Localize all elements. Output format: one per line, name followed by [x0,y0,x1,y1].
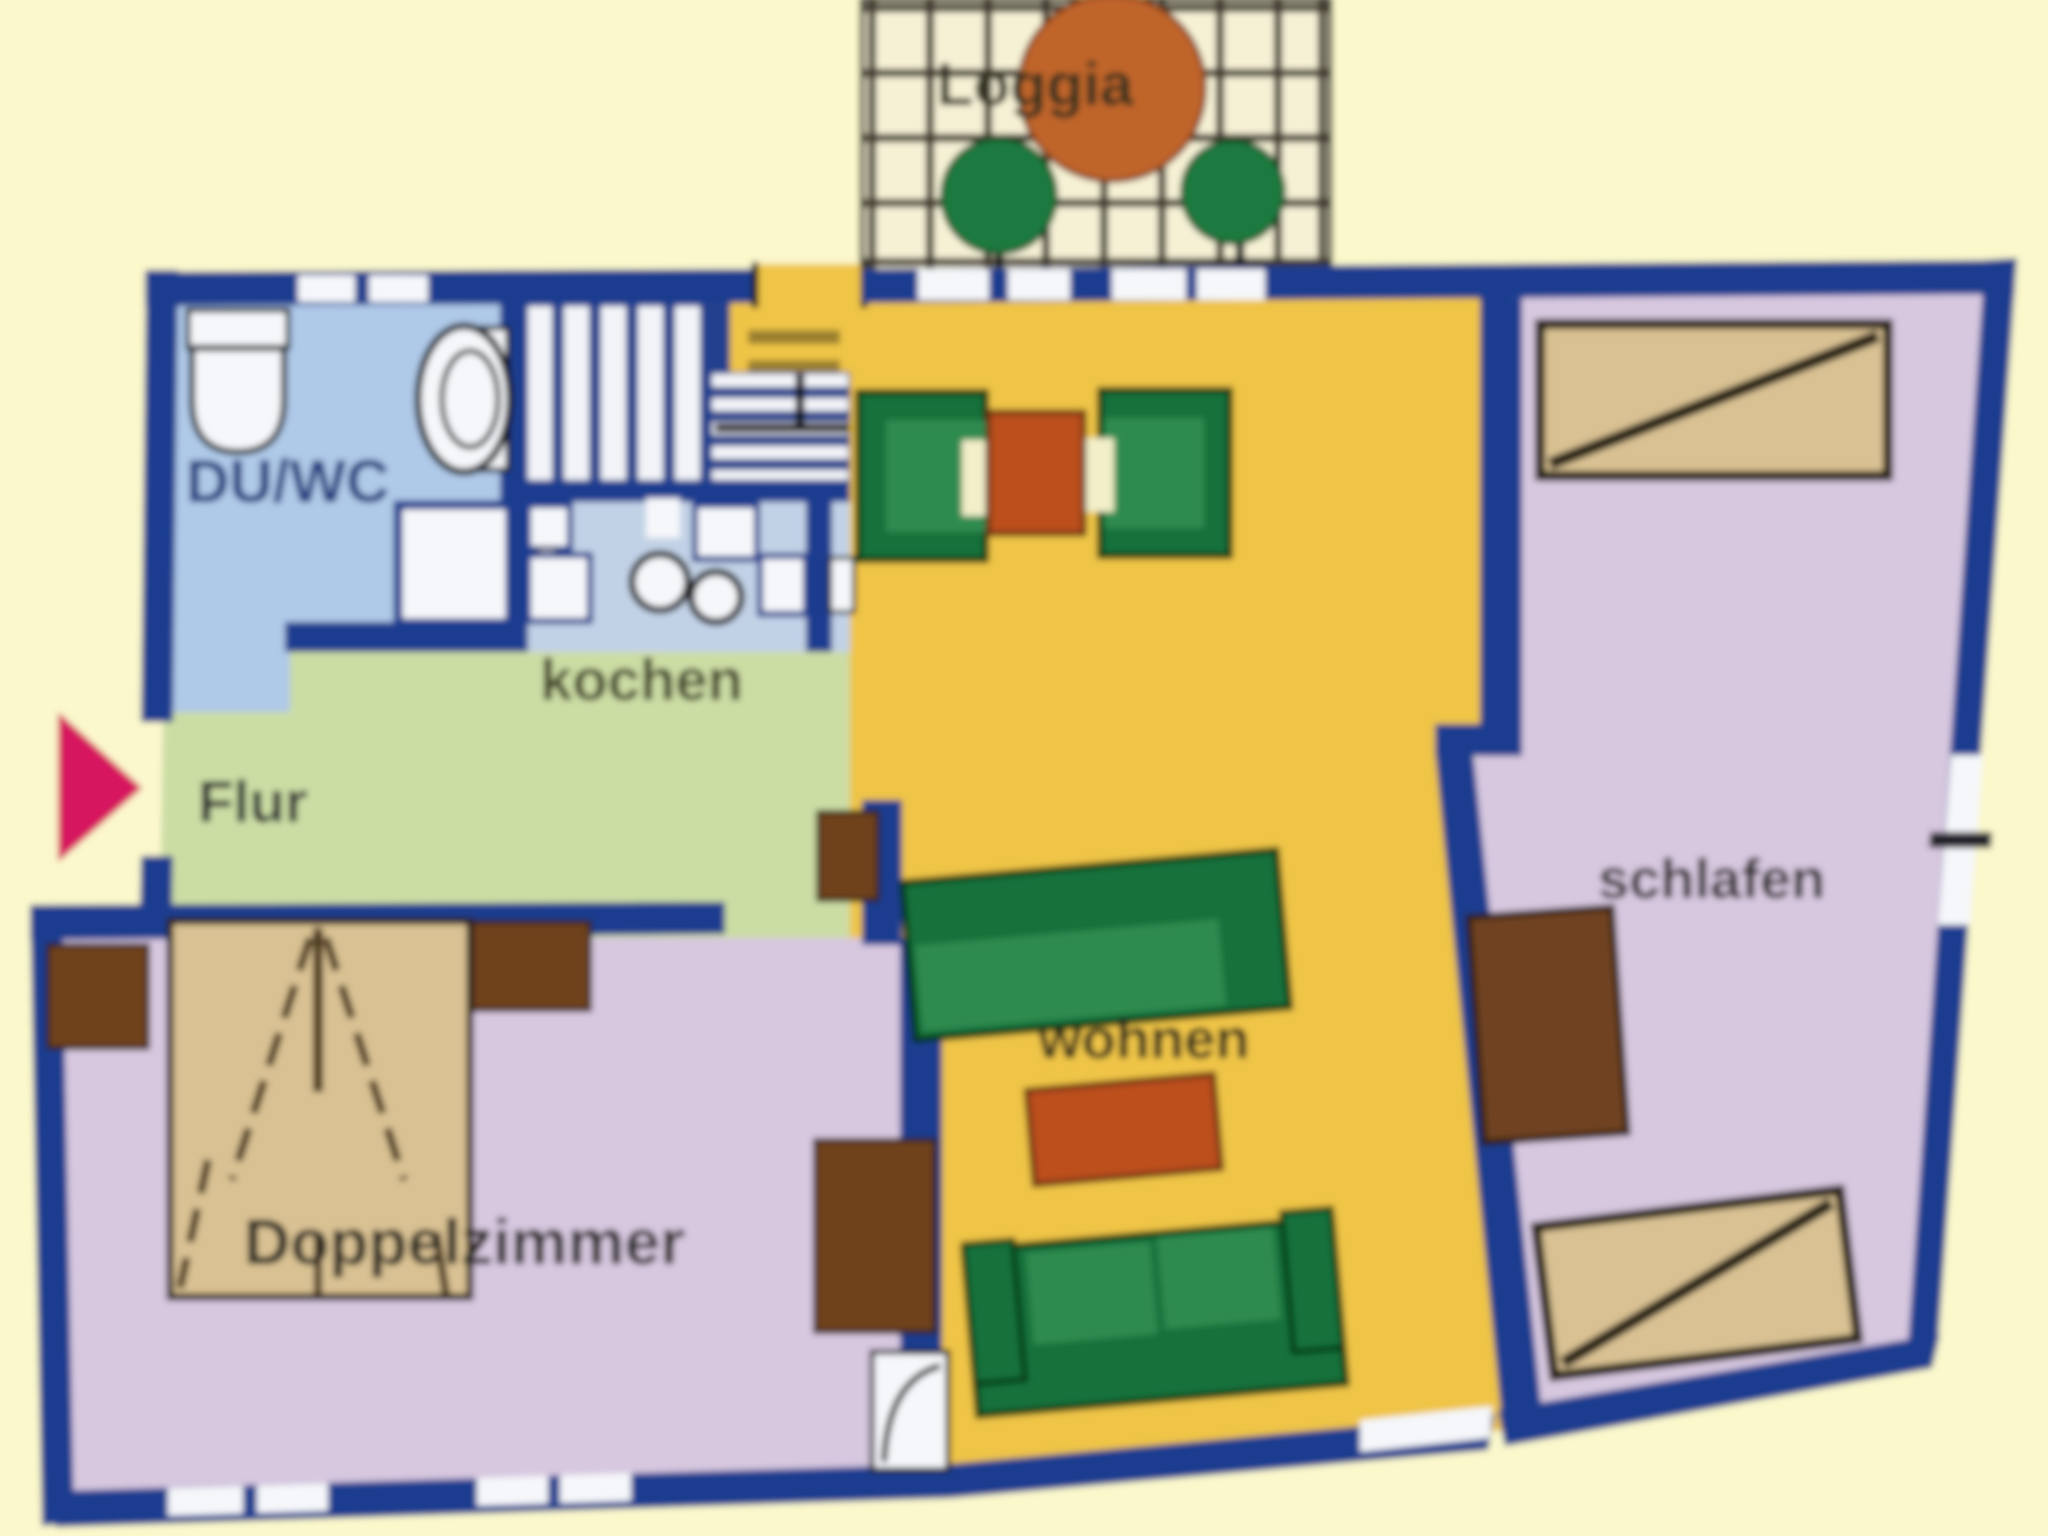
svg-text:Loggia: Loggia [937,51,1134,118]
svg-text:DU/WC: DU/WC [186,448,389,515]
svg-text:schlafen: schlafen [1598,847,1825,910]
svg-text:wohnen: wohnen [1037,1007,1250,1070]
svg-text:Doppelzimmer: Doppelzimmer [244,1206,685,1278]
svg-text:Flur: Flur [198,770,308,835]
svg-text:kochen: kochen [540,648,743,713]
